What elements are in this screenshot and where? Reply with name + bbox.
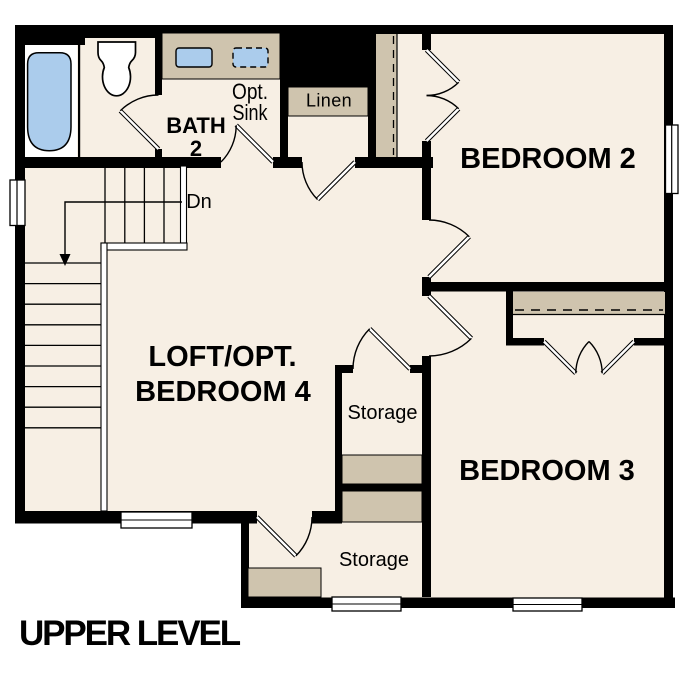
svg-text:Dn: Dn [186,191,212,213]
svg-text:BEDROOM 4: BEDROOM 4 [135,376,311,408]
svg-text:UPPER LEVEL: UPPER LEVEL [19,614,241,653]
svg-text:LOFT/OPT.: LOFT/OPT. [148,341,296,373]
svg-text:BATH: BATH [166,113,225,138]
svg-text:BEDROOM 2: BEDROOM 2 [460,143,636,175]
svg-text:Storage: Storage [347,402,417,424]
svg-text:Storage: Storage [339,549,409,571]
svg-text:Linen: Linen [306,91,352,111]
svg-text:BEDROOM 3: BEDROOM 3 [459,455,635,487]
svg-text:2: 2 [190,136,202,161]
svg-text:Sink: Sink [233,100,269,125]
